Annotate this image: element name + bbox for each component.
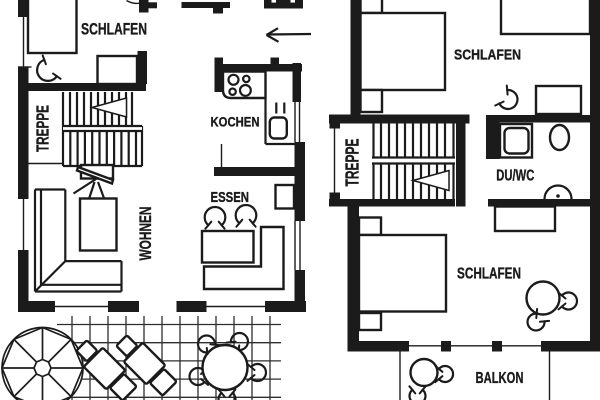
svg-text:KOCHEN: KOCHEN (211, 114, 260, 130)
svg-text:TREPPE: TREPPE (343, 139, 363, 187)
svg-text:ESSEN: ESSEN (211, 190, 250, 206)
svg-text:SCHLAFEN: SCHLAFEN (454, 47, 521, 64)
svg-text:BALKON: BALKON (476, 370, 524, 387)
svg-text:SCHLAFEN: SCHLAFEN (81, 21, 147, 39)
svg-text:TREPPE: TREPPE (33, 105, 53, 152)
svg-text:DU/WC: DU/WC (496, 168, 534, 185)
svg-text:SCHLAFEN: SCHLAFEN (457, 266, 521, 283)
svg-text:WOHNEN: WOHNEN (136, 207, 155, 261)
